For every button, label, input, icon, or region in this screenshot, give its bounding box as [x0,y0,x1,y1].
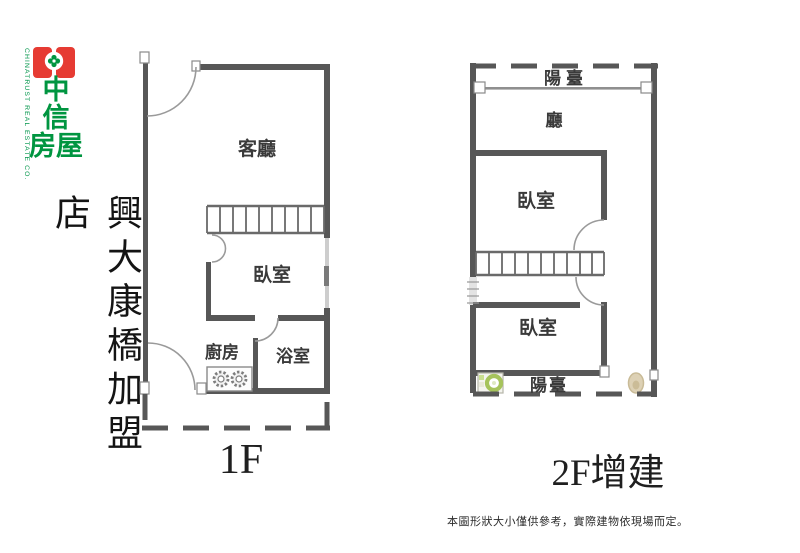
f2-walls [469,63,657,397]
stair-door-arc [212,235,226,262]
f2-door-jambs [474,82,658,380]
floorplan-2f: 陽臺 廳 臥室 臥室 陽臺 [467,63,658,397]
bedroom-upper-door-arc [574,220,604,250]
floorplan-page: CHINATRUST REAL ESTATE CO. 中 信 房屋 興大康橋加盟… [0,0,800,553]
stove-icon [207,367,252,391]
backdoor-arc [148,343,195,390]
disclaimer-text: 本圖形狀大小僅供參考，實際建物依現場而定。 [447,513,689,529]
room-label-balcony-bottom: 陽臺 [530,375,568,395]
stairs-2f-icon [476,252,604,275]
room-label-bedroom-lower: 臥室 [519,316,557,339]
caption-2f: 2F增建 [518,442,698,496]
yard-dashed-boundary [142,394,330,428]
window-latch [324,266,329,286]
room-label-living: 客廳 [238,137,276,160]
bedroom-door-arc [255,318,278,341]
room-label-hall: 廳 [546,110,563,130]
entrance-door-arc [147,67,196,116]
room-label-bedroom: 臥室 [253,263,291,286]
toilet-icon [629,373,644,393]
stairs-1f-icon [207,206,324,233]
caption-1f: 1F [196,436,286,484]
room-label-bath: 浴室 [276,346,310,366]
floorplan-1f: 客廳 臥室 廚房 浴室 [140,52,330,428]
room-label-kitchen: 廚房 [205,342,239,362]
room-label-balcony-top: 陽臺 [544,68,588,88]
window [469,277,477,305]
bedroom-lower-door-arc [576,277,604,305]
washing-machine-icon [478,373,503,393]
room-label-bedroom-upper: 臥室 [517,189,555,212]
